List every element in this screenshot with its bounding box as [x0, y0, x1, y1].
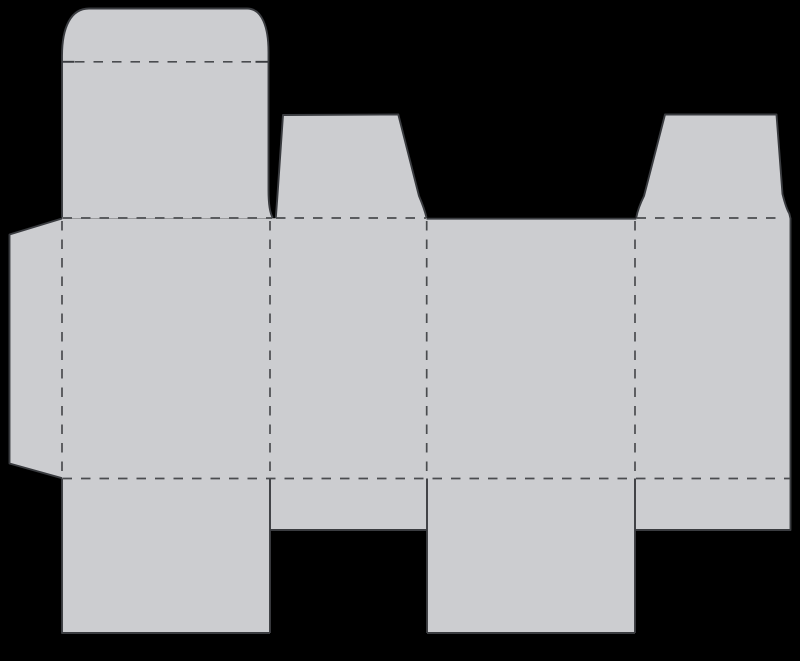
box-dieline-drawing	[0, 0, 800, 661]
dust-flap-top-right	[636, 115, 790, 219]
glue-flap	[10, 219, 63, 479]
bottom-flap-front	[62, 479, 270, 634]
main-panel-strip	[62, 218, 791, 478]
bottom-flap-side-left	[270, 479, 427, 531]
dust-flap-top-left	[276, 115, 427, 219]
bottom-flap-back	[427, 479, 635, 634]
tuck-flap-and-lid-panel	[62, 9, 273, 219]
dieline-stage	[0, 0, 800, 661]
bottom-flap-side-right	[635, 479, 791, 531]
dieline-panel-fills	[10, 9, 791, 634]
